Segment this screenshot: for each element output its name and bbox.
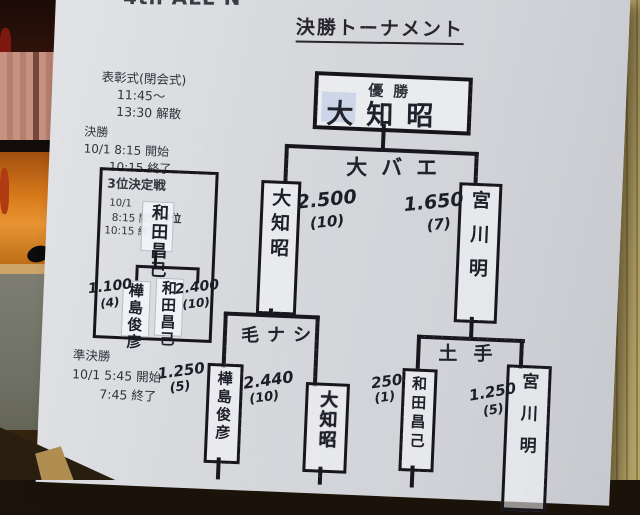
player-name: 大知昭 <box>312 389 340 450</box>
third-place-date: 10/1 <box>109 198 132 210</box>
player-name: 樺島俊彦 <box>212 370 236 443</box>
event-title: 4th ALL N <box>123 0 242 10</box>
finalist-left-weight: 2.500 <box>296 186 358 214</box>
ceremony-schedule: 表彰式(閉会式) 11:45〜 13:30 解散 <box>100 68 187 123</box>
bracket-line <box>224 311 320 319</box>
semifinal-line1: 10/1 5:45 開始 <box>72 364 162 387</box>
bracket-line <box>519 339 524 369</box>
finalist-right-fish: (7) <box>426 214 452 234</box>
curtain-fold <box>33 52 39 144</box>
finalist-left-fish: (10) <box>309 211 345 232</box>
player-box: 大知昭 <box>302 382 350 474</box>
finalist-right-name: 宮川明 <box>463 190 494 293</box>
semifinal-label: 準決勝 <box>73 345 163 368</box>
third-place-left-tape <box>121 280 151 337</box>
finalist-right-weight: 1.650 <box>403 188 465 216</box>
final-spot-label: 大バエ <box>346 151 451 182</box>
ceremony-end: 13:30 解散 <box>100 102 185 123</box>
bracket-line <box>222 311 228 367</box>
bracket-line <box>313 315 320 386</box>
bracket-line <box>381 124 386 150</box>
page-title: 決勝トーナメント <box>296 12 464 45</box>
bracket-line <box>269 308 273 315</box>
finalist-left-name: 大知昭 <box>265 187 295 263</box>
player-box: 宮川明 <box>501 364 552 512</box>
player-name: 宮川明 <box>513 372 542 469</box>
champion-box: 優勝 大知昭 <box>313 71 473 136</box>
finalist-left-box: 大知昭 <box>256 180 302 316</box>
third-place-left-name: 樺島俊彦 <box>123 282 147 351</box>
third-place-right-fish: (10) <box>182 295 211 312</box>
third-place-right-weight: 2.400 <box>174 277 220 298</box>
player-weight: 1.250 <box>156 359 205 383</box>
player-fish: (10) <box>248 388 280 407</box>
player-fish: (1) <box>374 389 397 407</box>
third-place-left-fish: (4) <box>99 295 120 311</box>
semifinal-line2: 7:45 終了 <box>71 383 161 406</box>
bracket-line <box>417 335 525 344</box>
bracket-line <box>473 152 478 186</box>
final-schedule: 決勝 10/1 8:15 開始 10:15 終了 <box>83 123 173 178</box>
third-place-title: 3位決定戦 <box>107 173 166 194</box>
third-place-right-tape <box>154 278 184 337</box>
bracket-line <box>416 335 422 371</box>
bracket-line <box>135 268 139 281</box>
third-place-left-weight: 1.100 <box>87 276 133 297</box>
champion-name: 大知昭 <box>326 92 447 134</box>
final-line2: 10:15 終了 <box>83 157 172 178</box>
finalist-right-box: 宮川明 <box>454 182 503 324</box>
player-weight: 2.440 <box>242 367 295 393</box>
third-place-end: 10:15 終了 <box>104 222 159 239</box>
bracket-line <box>469 317 474 339</box>
bracket-line <box>318 467 323 485</box>
player-weight: 1.250 <box>468 379 518 405</box>
third-place-rank-label: 3位 <box>162 210 181 227</box>
third-place-winner-name: 和田昌己 <box>143 203 171 280</box>
player-weight: 250 <box>370 370 403 392</box>
final-line1: 10/1 8:15 開始 <box>83 140 172 161</box>
ceremony-title: 表彰式(閉会式) <box>101 68 186 89</box>
bracket-line <box>216 457 221 479</box>
bracket-line <box>285 144 479 156</box>
semifinal-right-spot-label: 土手 <box>438 339 508 366</box>
third-place-box: 3位決定戦 10/1 8:15 開始 3位 10:15 終了 和田昌己 樺島俊彦… <box>93 167 219 343</box>
third-place-start: 8:15 開始 <box>111 210 160 227</box>
semifinal-left-spot-label: 毛ナシ <box>241 320 319 347</box>
tournament-board: 4th ALL N 決勝トーナメント 表彰式(閉会式) 11:45〜 13:30… <box>36 0 631 506</box>
champion-label: 優勝 <box>318 77 469 104</box>
player-fish: (5) <box>169 378 192 396</box>
player-box: 和田昌己 <box>398 368 437 472</box>
semifinal-schedule: 準決勝 10/1 5:45 開始 7:45 終了 <box>71 345 162 406</box>
bracket-line <box>283 144 289 182</box>
player-fish: (5) <box>482 401 505 419</box>
final-label: 決勝 <box>84 123 173 144</box>
bracket-line <box>410 465 415 487</box>
ceremony-time: 11:45〜 <box>101 85 186 106</box>
third-place-winner-tape <box>140 201 174 252</box>
third-place-right-name: 和田昌己 <box>156 280 180 349</box>
bracket-line <box>136 265 200 271</box>
blue-sticker <box>321 91 356 122</box>
red-object-2 <box>0 168 9 214</box>
player-box: 樺島俊彦 <box>204 363 244 464</box>
bracket-line <box>196 270 200 283</box>
bracket-line <box>154 251 158 267</box>
player-name: 和田昌己 <box>406 375 430 452</box>
